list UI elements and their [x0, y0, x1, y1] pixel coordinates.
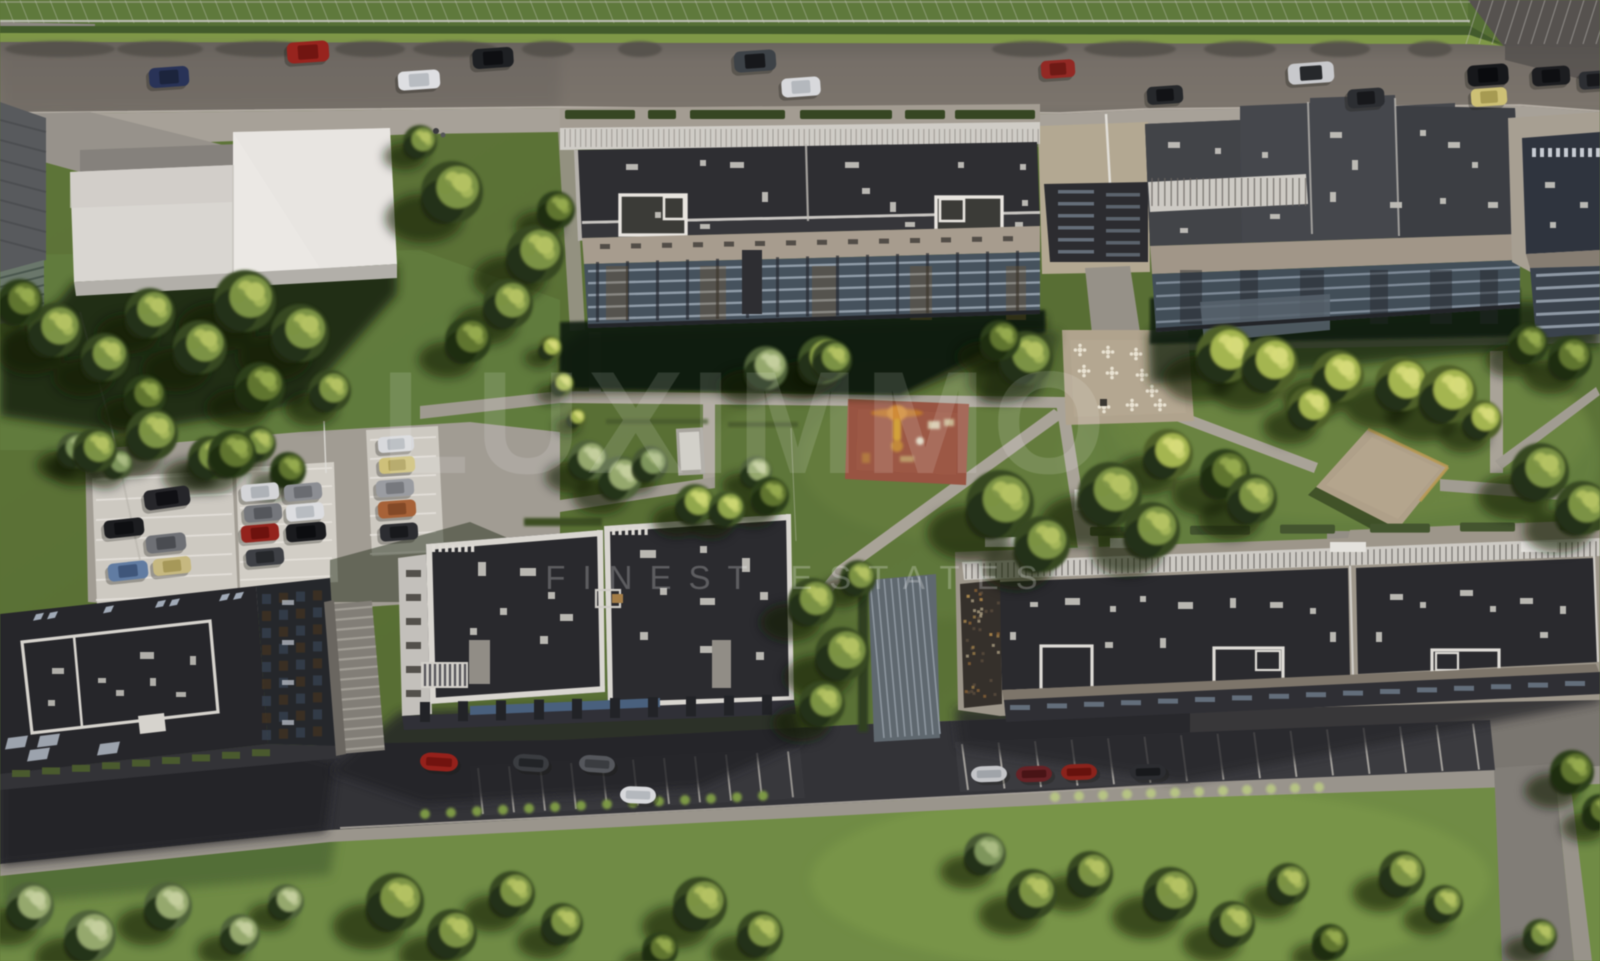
svg-text:LUXIMMO: LUXIMMO: [380, 341, 1111, 504]
svg-text:FINEST ESTATES: FINEST ESTATES: [545, 559, 1054, 596]
